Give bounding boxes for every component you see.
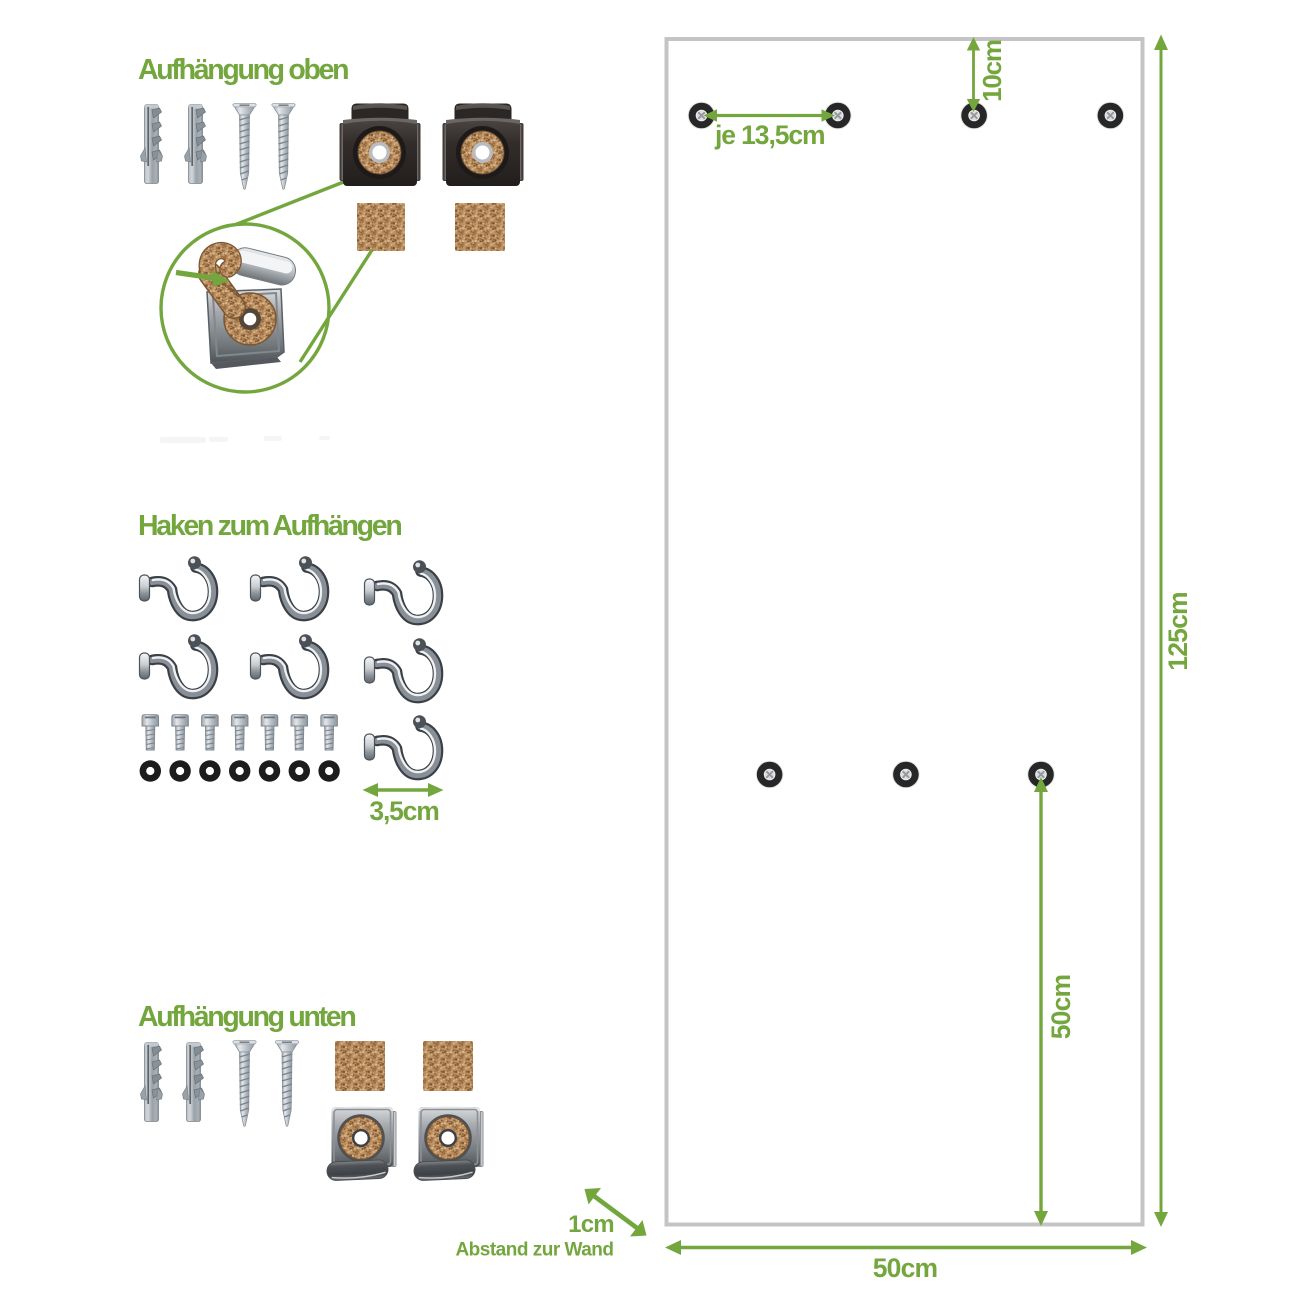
svg-text:Haken zum Aufhängen: Haken zum Aufhängen bbox=[138, 510, 401, 542]
svg-text:Abstand zur Wand: Abstand zur Wand bbox=[455, 1240, 613, 1261]
svg-text:Aufhängung oben: Aufhängung oben bbox=[138, 54, 348, 86]
svg-text:1cm: 1cm bbox=[568, 1211, 614, 1238]
svg-text:3,5cm: 3,5cm bbox=[369, 796, 438, 826]
svg-text:50cm: 50cm bbox=[873, 1253, 938, 1283]
svg-text:50cm: 50cm bbox=[1046, 975, 1076, 1040]
svg-text:125cm: 125cm bbox=[1163, 592, 1193, 671]
svg-text:10cm: 10cm bbox=[977, 40, 1007, 102]
svg-text:je 13,5cm: je 13,5cm bbox=[714, 120, 824, 150]
svg-text:Aufhängung unten: Aufhängung unten bbox=[138, 1001, 355, 1033]
